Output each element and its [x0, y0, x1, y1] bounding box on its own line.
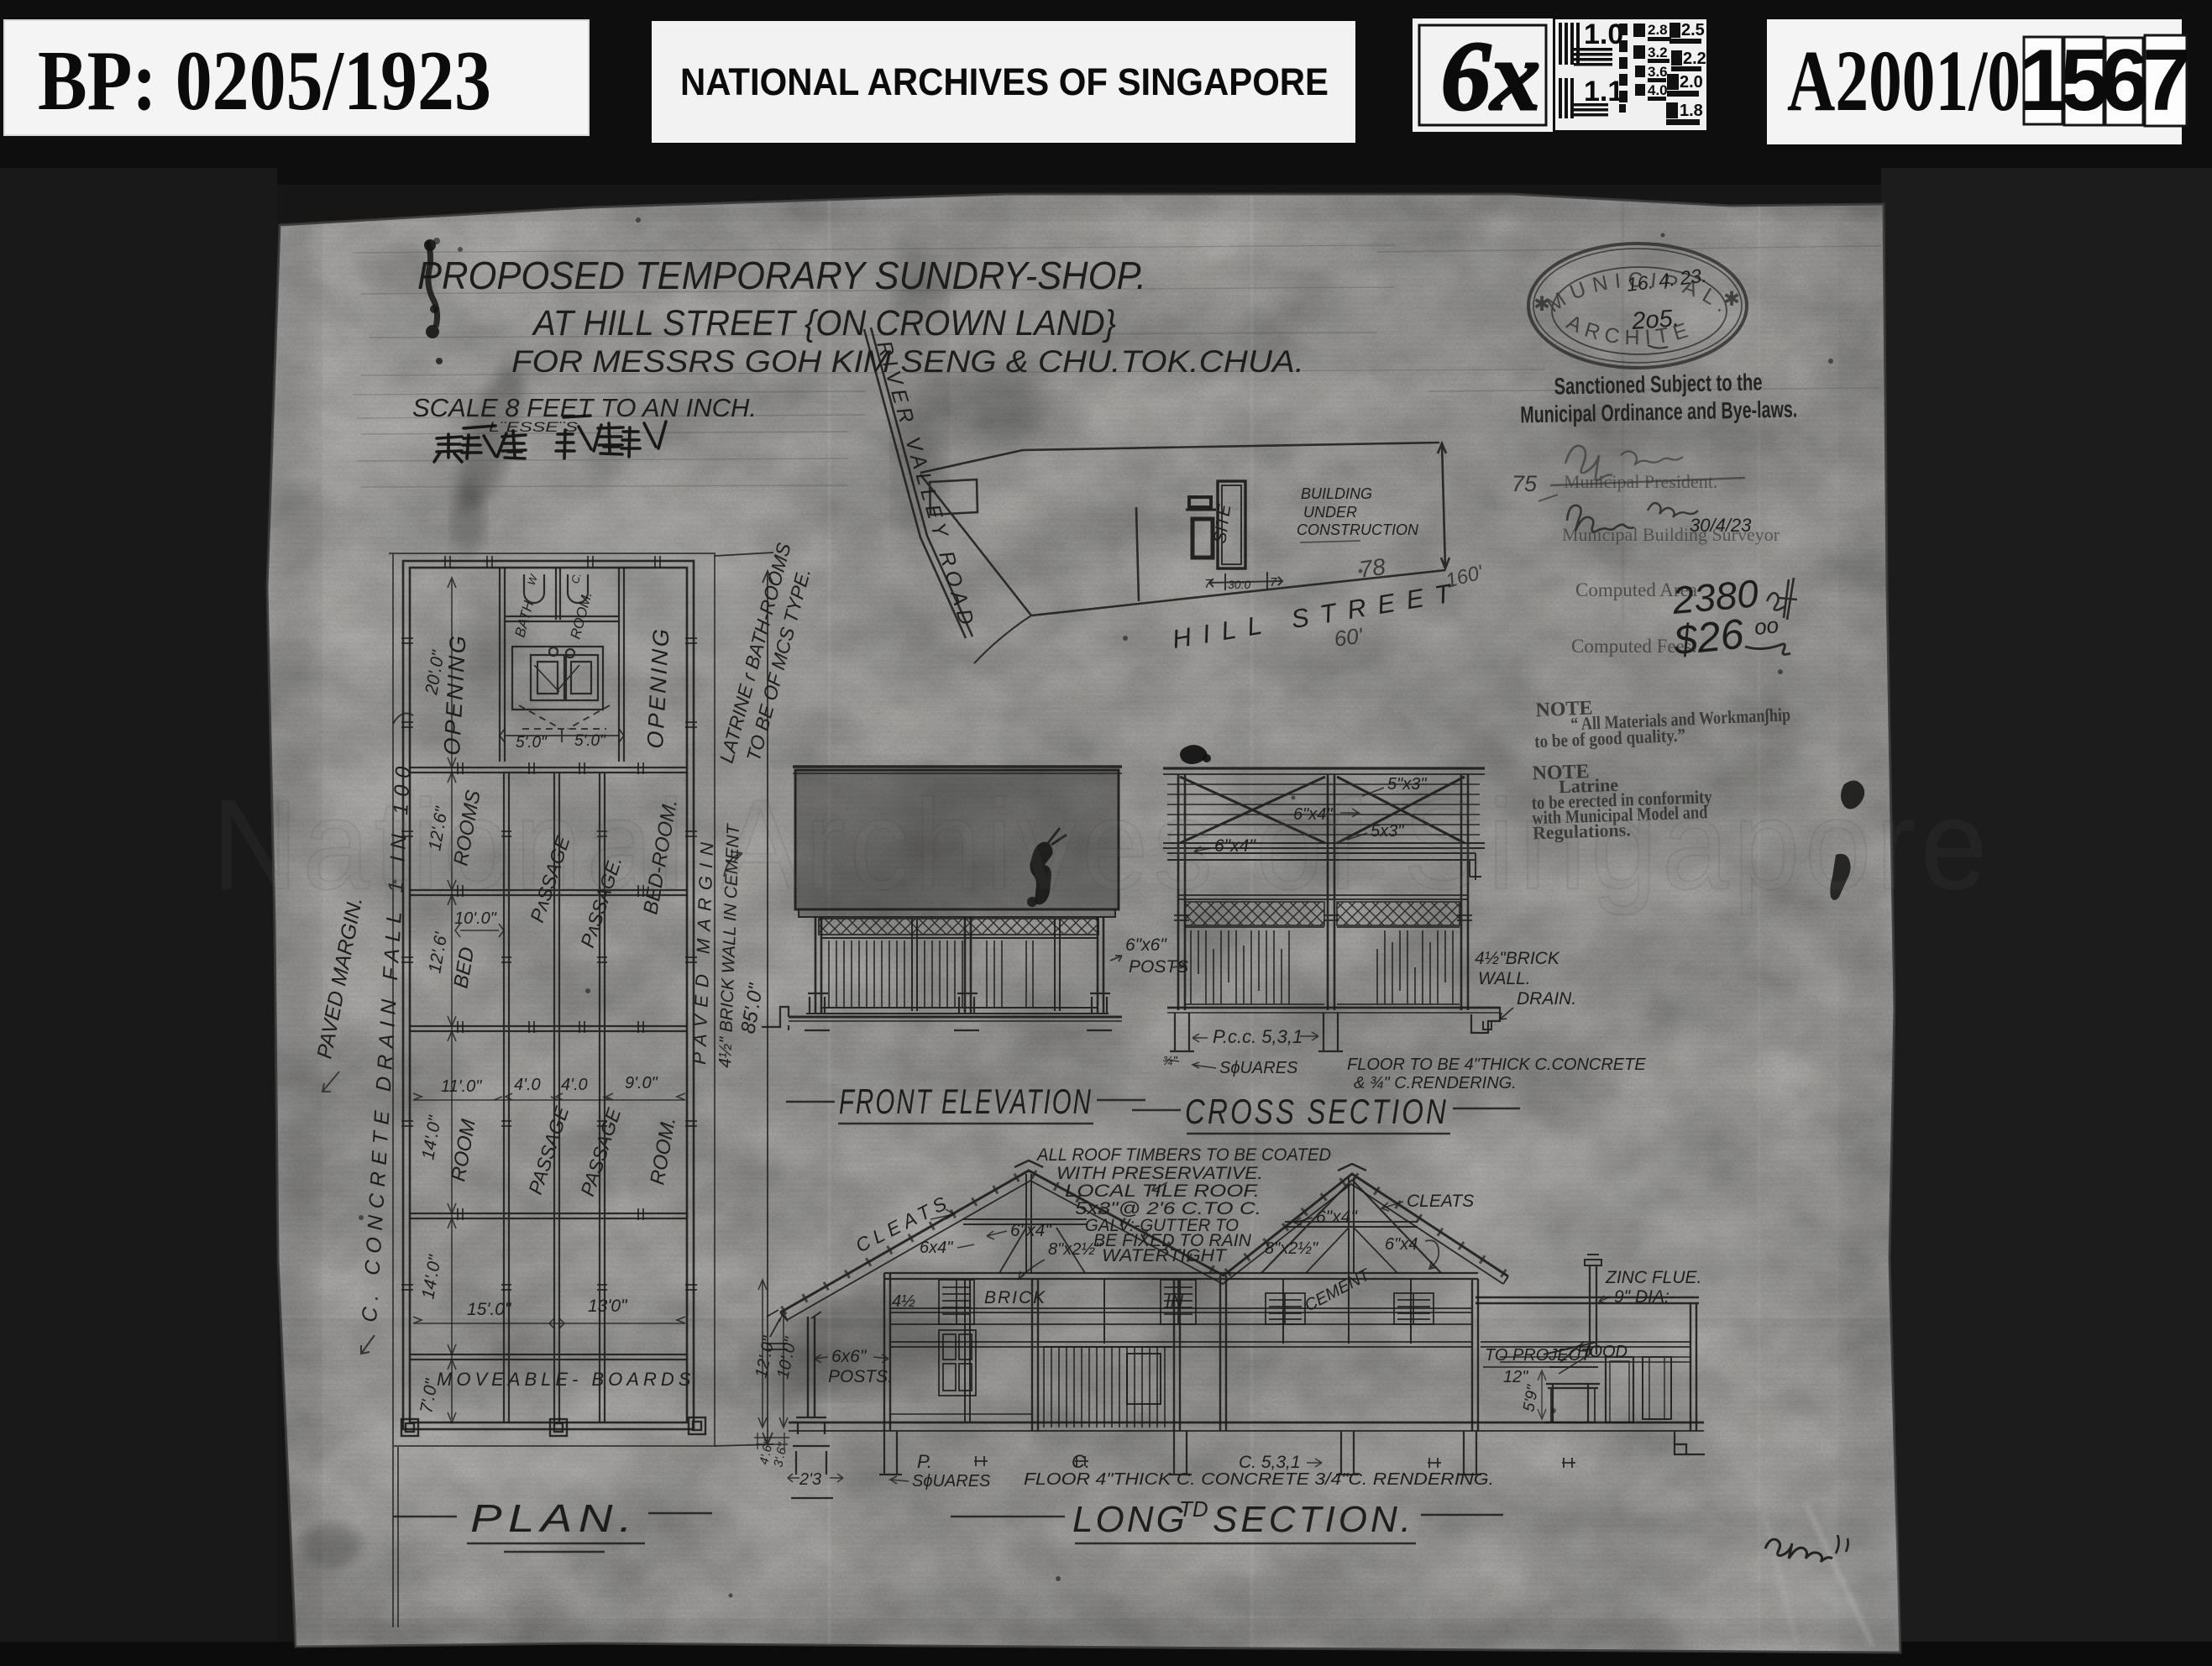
svg-text:BP: 0205/1923: BP: 0205/1923	[38, 34, 491, 128]
svg-text:4.0: 4.0	[1648, 82, 1668, 98]
svg-text:SCALE 8 FEET TO AN INCH.: SCALE 8 FEET TO AN INCH.	[412, 393, 757, 422]
svg-text:11ʹ.0ʺ: 11ʹ.0ʺ	[441, 1077, 482, 1096]
svg-text:TD: TD	[1179, 1496, 1208, 1522]
svg-text:WATERTIGHT: WATERTIGHT	[1102, 1246, 1228, 1265]
svg-text:FLOOR TO BE 4ʺTHICK C.CONCRETE: FLOOR TO BE 4ʺTHICK C.CONCRETE	[1347, 1056, 1646, 1074]
svg-text:BRICK: BRICK	[984, 1288, 1046, 1307]
svg-text:3.6: 3.6	[1648, 64, 1668, 80]
svg-text:CONSTRUCTION: CONSTRUCTION	[1297, 521, 1419, 538]
svg-text:75: 75	[1512, 471, 1538, 496]
svg-text:✱: ✱	[1533, 293, 1550, 316]
svg-text:2.2: 2.2	[1683, 50, 1706, 68]
svg-text:Sanctioned Subject to the: Sanctioned Subject to the	[1554, 369, 1763, 399]
svg-text:3.2: 3.2	[1648, 45, 1668, 60]
svg-text:12ʺ: 12ʺ	[1503, 1368, 1528, 1386]
svg-text:FLOOR 4ʺTHICK C. CONCRETE 3/: FLOOR 4ʺTHICK C. CONCRETE 3/4ʺC. RENDERI…	[1024, 1470, 1494, 1489]
svg-text:& ¾ʺ C.RENDERING.: & ¾ʺ C.RENDERING.	[1354, 1074, 1517, 1092]
svg-text:15ʹ.0ʺ: 15ʹ.0ʺ	[467, 1300, 512, 1319]
svg-text:6ʺx6ʺ: 6ʺx6ʺ	[1125, 935, 1167, 955]
svg-text:6ʺx4ʺ: 6ʺx4ʺ	[1010, 1221, 1052, 1240]
svg-text:8ʺx2½ʺ: 8ʺx2½ʺ	[1265, 1239, 1318, 1258]
svg-text:5ʹ.0ʺ: 5ʹ.0ʺ	[574, 732, 606, 750]
svg-text:$26: $26	[1670, 610, 1746, 665]
svg-text:ALL ROOF TIMBERS TO BE COATED: ALL ROOF TIMBERS TO BE COATED	[1035, 1145, 1331, 1165]
svg-text:FOR MESSRS GOH KIM SENG & CH: FOR MESSRS GOH KIM SENG & CHU.TOK.CHUA.	[511, 344, 1304, 379]
svg-text:Municipal Building Surveyor: Municipal Building Surveyor	[1562, 524, 1780, 545]
svg-text:A2001/0: A2001/0	[1787, 33, 2021, 129]
svg-text:2.8: 2.8	[1648, 22, 1668, 38]
svg-text:4ʹ.0: 4ʹ.0	[561, 1076, 588, 1094]
svg-text:WALL.: WALL.	[1478, 969, 1531, 988]
svg-text:2.0: 2.0	[1680, 73, 1703, 92]
svg-text:1.1: 1.1	[1584, 76, 1623, 107]
svg-text:FRONT ELEVATION: FRONT ELEVATION	[839, 1082, 1093, 1121]
svg-text:7: 7	[1270, 575, 1277, 589]
svg-text:4½ʺBRICK: 4½ʺBRICK	[1475, 949, 1560, 968]
svg-text:6x: 6x	[1441, 21, 1540, 131]
svg-text:PLAN.: PLAN.	[470, 1496, 638, 1540]
svg-text:13ʹ0ʺ: 13ʹ0ʺ	[588, 1297, 628, 1316]
svg-text:UNDER: UNDER	[1303, 504, 1357, 521]
svg-text:2o5.: 2o5.	[1630, 305, 1680, 335]
svg-text:NATIONAL ARCHIVES OF SINGAPORE: NATIONAL ARCHIVES OF SINGAPORE	[680, 60, 1329, 103]
svg-text:9ʹ.0ʺ: 9ʹ.0ʺ	[625, 1074, 658, 1092]
svg-text:P.c.c. 5,3,1: P.c.c. 5,3,1	[1213, 1026, 1303, 1047]
svg-text:SECTION.: SECTION.	[1213, 1499, 1414, 1540]
svg-text:ZINC FLUE.: ZINC FLUE.	[1605, 1268, 1701, 1287]
svg-text:6ʺx4: 6ʺx4	[1385, 1235, 1418, 1254]
svg-text:AT HILL STREET {ON CROWN LAND}: AT HILL STREET {ON CROWN LAND}	[531, 303, 1116, 343]
svg-text:CROSS SECTION: CROSS SECTION	[1185, 1092, 1449, 1131]
svg-text:PROPOSED TEMPORARY SUNDRY-SH: PROPOSED TEMPORARY SUNDRY-SHOP.	[417, 254, 1146, 297]
svg-text:1.0: 1.0	[1584, 18, 1623, 50]
svg-text:1.8: 1.8	[1680, 102, 1703, 120]
svg-text:LONG: LONG	[1072, 1499, 1187, 1540]
svg-text:30:0: 30:0	[1228, 578, 1250, 591]
svg-text:60ʹ: 60ʹ	[1333, 622, 1365, 652]
svg-text:P.: P.	[917, 1451, 932, 1472]
svg-text:C.: C.	[1072, 1451, 1090, 1472]
svg-text:6x6ʺ: 6x6ʺ	[831, 1347, 868, 1366]
svg-text:78: 78	[1358, 553, 1388, 583]
svg-text:✱: ✱	[1723, 288, 1740, 311]
svg-text:SɸUARES: SɸUARES	[912, 1472, 991, 1490]
svg-text:C. 5,3,1: C. 5,3,1	[1239, 1453, 1301, 1472]
svg-text:BUILDING: BUILDING	[1301, 485, 1372, 502]
svg-text:IN: IN	[1166, 1291, 1184, 1311]
svg-text:¾ʺ: ¾ʺ	[1162, 1054, 1178, 1068]
svg-text:National Archives of Singapore: National Archives of Singapore	[212, 773, 1992, 916]
svg-text:2.5: 2.5	[1681, 21, 1705, 39]
svg-text:POSTS.: POSTS.	[828, 1367, 893, 1386]
svg-text:HOOD: HOOD	[1577, 1343, 1628, 1361]
svg-text:5ʹ.0ʺ: 5ʹ.0ʺ	[516, 734, 548, 752]
svg-text:9ʺ DIA:-: 9ʺ DIA:-	[1614, 1287, 1675, 1307]
svg-text:4½: 4½	[892, 1292, 915, 1311]
svg-text:6x4ʺ: 6x4ʺ	[920, 1239, 953, 1257]
svg-text:MOVEABLE- BOARDS: MOVEABLE- BOARDS	[437, 1369, 695, 1390]
svg-text:8ʺx2½ʺ: 8ʺx2½ʺ	[1048, 1240, 1102, 1259]
svg-text:oo: oo	[1753, 612, 1780, 640]
svg-text:7: 7	[1204, 577, 1212, 591]
svg-text:2ʹ3: 2ʹ3	[799, 1470, 821, 1489]
svg-text:4ʹ.0: 4ʹ.0	[514, 1076, 541, 1094]
svg-text:DRAIN.: DRAIN.	[1517, 989, 1576, 1009]
svg-text:7: 7	[2142, 32, 2191, 129]
svg-text:SɸUARES: SɸUARES	[1219, 1059, 1298, 1077]
svg-text:Municipal President.: Municipal President.	[1564, 471, 1717, 492]
svg-text:WITH PRESERVATIVE.: WITH PRESERVATIVE.	[1056, 1164, 1263, 1183]
svg-text:6ʺx4ʺ: 6ʺx4ʺ	[1316, 1208, 1358, 1227]
svg-text:CLEATS: CLEATS	[1407, 1192, 1474, 1211]
